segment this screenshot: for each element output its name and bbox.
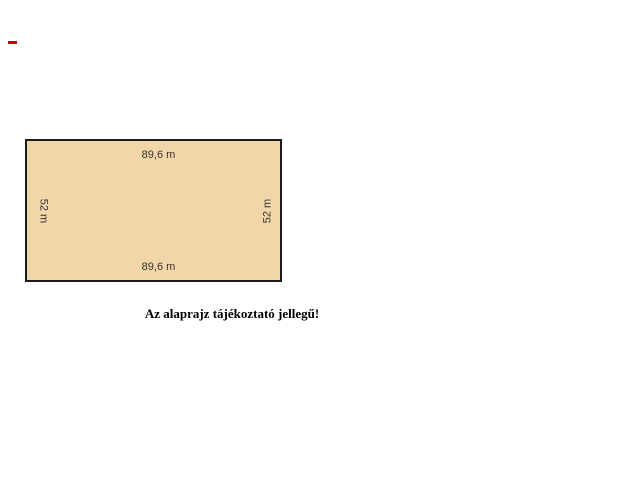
left-height-label: 52 m <box>38 199 49 223</box>
right-height-label: 52 m <box>263 199 274 223</box>
red-dash-marker <box>8 41 17 44</box>
top-width-label: 89,6 m <box>142 150 176 161</box>
plot-rectangle: 89,6 m 52 m 52 m 89,6 m <box>25 139 282 282</box>
disclaimer-caption: Az alaprajz tájékoztató jellegű! <box>145 306 319 322</box>
floorplan-page: 89,6 m 52 m 52 m 89,6 m Az alaprajz tájé… <box>0 0 640 480</box>
bottom-width-label: 89,6 m <box>142 262 176 273</box>
